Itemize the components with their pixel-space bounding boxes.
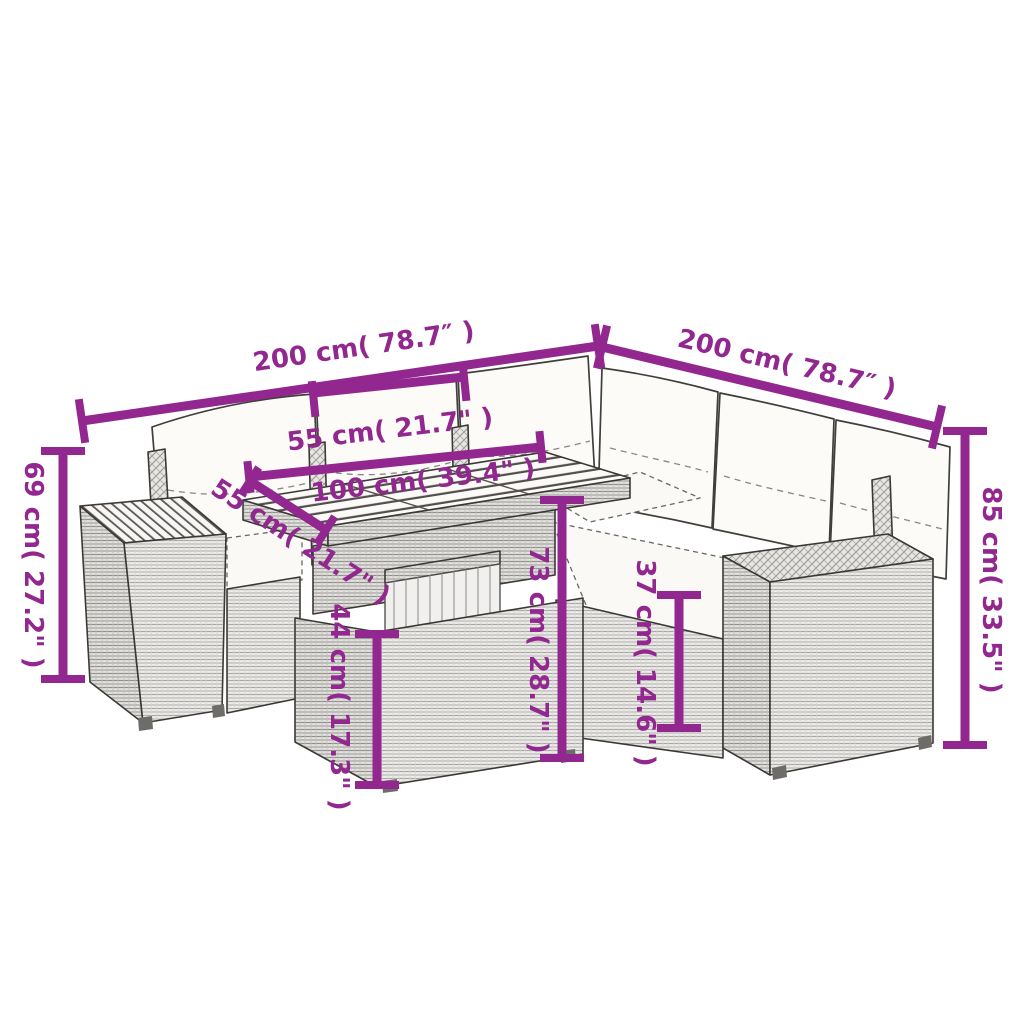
frame-post (148, 449, 168, 505)
product-dimension-image: 200 cm( 78.7″ ) 200 cm( 78.7″ ) 55 cm( 2… (0, 0, 1024, 1024)
dimension-label-back-height: 85 cm( 33.5" ) (976, 486, 1006, 693)
right-armrest-block (723, 534, 933, 780)
back-cushion (713, 393, 834, 554)
left-seat-and-base (227, 528, 302, 713)
dimension-label-table-height: 73 cm( 28.7" ) (523, 546, 553, 753)
furniture-illustration (80, 356, 950, 793)
furniture-foot (212, 704, 225, 718)
dimension-label-table-base-height: 44 cm( 17.3" ) (324, 603, 354, 810)
dimension-label-seat-height: 37 cm( 14.6" ) (630, 559, 660, 766)
armrest-front-face (124, 534, 226, 723)
left-armrest-block (80, 497, 226, 731)
sofa-base (227, 577, 300, 713)
furniture-foot (138, 716, 153, 731)
armrest-left-face (723, 556, 770, 775)
dimension-label-armrest-height: 69 cm( 27.2" ) (18, 461, 48, 668)
dimension-diagram-canvas: 200 cm( 78.7″ ) 200 cm( 78.7″ ) 55 cm( 2… (0, 0, 1024, 1024)
armrest-front-face (770, 559, 933, 775)
